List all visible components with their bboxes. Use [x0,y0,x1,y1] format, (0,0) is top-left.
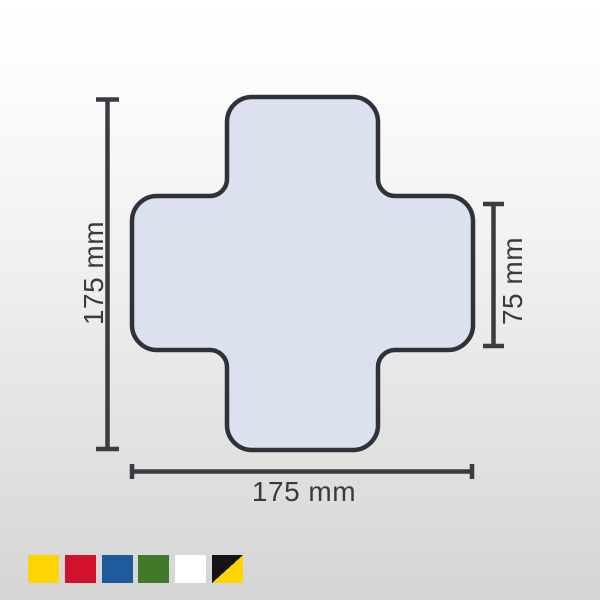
height-dimension-label: 175 mm [78,221,110,325]
cross-shape [132,97,473,450]
width-dimension-label: 175 mm [252,476,356,508]
product-dimension-diagram: 175 mm 75 mm 175 mm [0,0,600,600]
arm-dimension-label: 75 mm [497,237,529,325]
